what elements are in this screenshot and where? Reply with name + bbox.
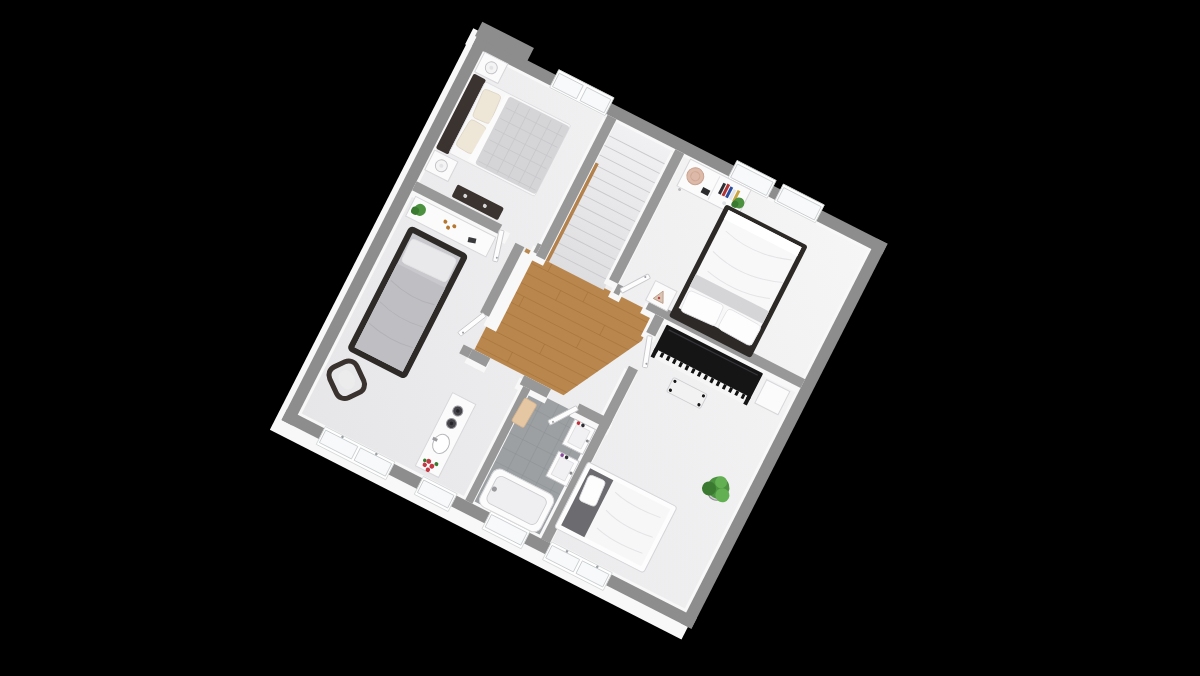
floorplan-render [0,0,1200,676]
screenshot-canvas [0,0,1200,676]
